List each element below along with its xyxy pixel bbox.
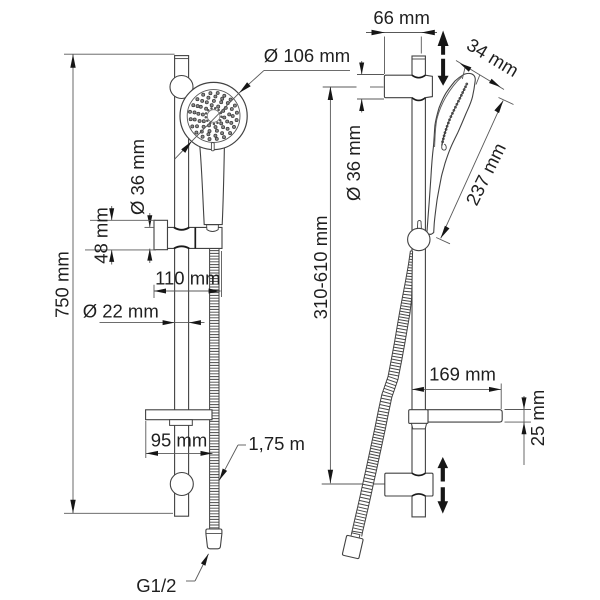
svg-text:110 mm: 110 mm <box>155 267 220 288</box>
svg-text:310-610 mm: 310-610 mm <box>310 215 331 319</box>
svg-text:Ø 36 mm: Ø 36 mm <box>343 125 364 201</box>
svg-text:48 mm: 48 mm <box>91 207 112 264</box>
svg-text:G1/2: G1/2 <box>136 575 176 596</box>
svg-text:Ø 22 mm: Ø 22 mm <box>83 301 159 322</box>
svg-text:95 mm: 95 mm <box>151 430 208 451</box>
svg-text:750 mm: 750 mm <box>52 251 73 318</box>
svg-text:169 mm: 169 mm <box>429 364 496 385</box>
svg-text:66 mm: 66 mm <box>373 7 430 28</box>
svg-text:25 mm: 25 mm <box>527 390 548 447</box>
svg-text:Ø 106 mm: Ø 106 mm <box>264 45 350 66</box>
svg-text:Ø 36 mm: Ø 36 mm <box>127 139 148 215</box>
svg-text:1,75 m: 1,75 m <box>248 433 305 454</box>
